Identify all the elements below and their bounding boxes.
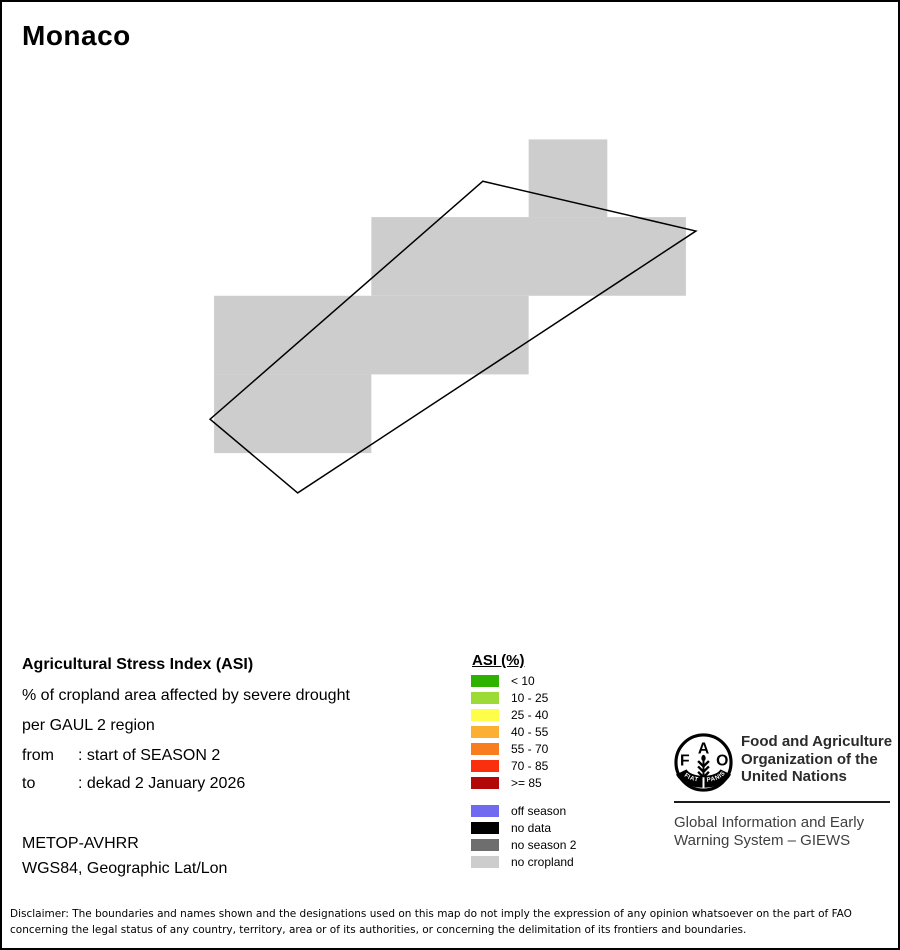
legend-swatch xyxy=(471,743,499,755)
legend-label: 40 - 55 xyxy=(511,725,548,739)
legend-label: < 10 xyxy=(511,674,535,688)
legend-label: 25 - 40 xyxy=(511,708,548,722)
asi-subtitle-1: % of cropland area affected by severe dr… xyxy=(22,688,350,704)
from-label: from xyxy=(22,748,78,764)
legend-label: off season xyxy=(511,804,566,818)
legend-label: >= 85 xyxy=(511,776,542,790)
fao-org-line-3: United Nations xyxy=(741,768,892,786)
asi-subtitle-2: per GAUL 2 region xyxy=(22,718,155,734)
fao-logo-letter-o: O xyxy=(716,752,728,769)
legend-label: no cropland xyxy=(511,855,574,869)
fao-logo: F A O FIAT PANIS xyxy=(674,733,733,792)
legend-swatch xyxy=(471,822,499,834)
period-to-line: to: dekad 2 January 2026 xyxy=(22,776,245,792)
legend-swatch xyxy=(471,760,499,772)
disclaimer-line-2: concerning the legal status of any count… xyxy=(10,923,852,939)
giews-line-1: Global Information and Early xyxy=(674,814,864,832)
disclaimer: Disclaimer: The boundaries and names sho… xyxy=(10,907,852,938)
legend-label: 55 - 70 xyxy=(511,742,548,756)
legend-label: no data xyxy=(511,821,551,835)
legend-swatch xyxy=(471,805,499,817)
to-label: to xyxy=(22,776,78,792)
giews-name: Global Information and Early Warning Sys… xyxy=(674,814,864,849)
projection-name: WGS84, Geographic Lat/Lon xyxy=(22,861,227,877)
legend-title: ASI (%) xyxy=(472,653,525,668)
map-svg xyxy=(2,2,898,948)
page-title: Monaco xyxy=(22,20,131,52)
legend-swatch xyxy=(471,709,499,721)
legend-swatch xyxy=(471,675,499,687)
legend-swatch xyxy=(471,856,499,868)
map-cell-no-cropland xyxy=(529,139,608,217)
legend-label: no season 2 xyxy=(511,838,576,852)
sensor-name: METOP-AVHRR xyxy=(22,836,139,852)
map-cell-no-cropland xyxy=(214,296,529,375)
fao-org-line-2: Organization of the xyxy=(741,751,892,769)
legend-label: 10 - 25 xyxy=(511,691,548,705)
legend-swatch xyxy=(471,726,499,738)
fao-logo-letter-f: F xyxy=(680,752,690,769)
giews-line-2: Warning System – GIEWS xyxy=(674,832,864,850)
disclaimer-line-1: Disclaimer: The boundaries and names sho… xyxy=(10,907,852,923)
asi-heading: Agricultural Stress Index (ASI) xyxy=(22,657,253,673)
legend-swatch xyxy=(471,839,499,851)
fao-org-name: Food and Agriculture Organization of the… xyxy=(741,733,892,786)
map-page: Monaco Agricultural Stress Index (ASI) %… xyxy=(0,0,900,950)
map-cell-no-cropland xyxy=(371,217,686,296)
fao-divider-line xyxy=(674,801,890,803)
fao-org-line-1: Food and Agriculture xyxy=(741,733,892,751)
map-cell-no-cropland xyxy=(214,374,371,453)
to-value: : dekad 2 January 2026 xyxy=(78,775,245,792)
from-value: : start of SEASON 2 xyxy=(78,747,220,764)
legend-swatch xyxy=(471,692,499,704)
period-from-line: from: start of SEASON 2 xyxy=(22,748,220,764)
legend-label: 70 - 85 xyxy=(511,759,548,773)
legend-swatch xyxy=(471,777,499,789)
